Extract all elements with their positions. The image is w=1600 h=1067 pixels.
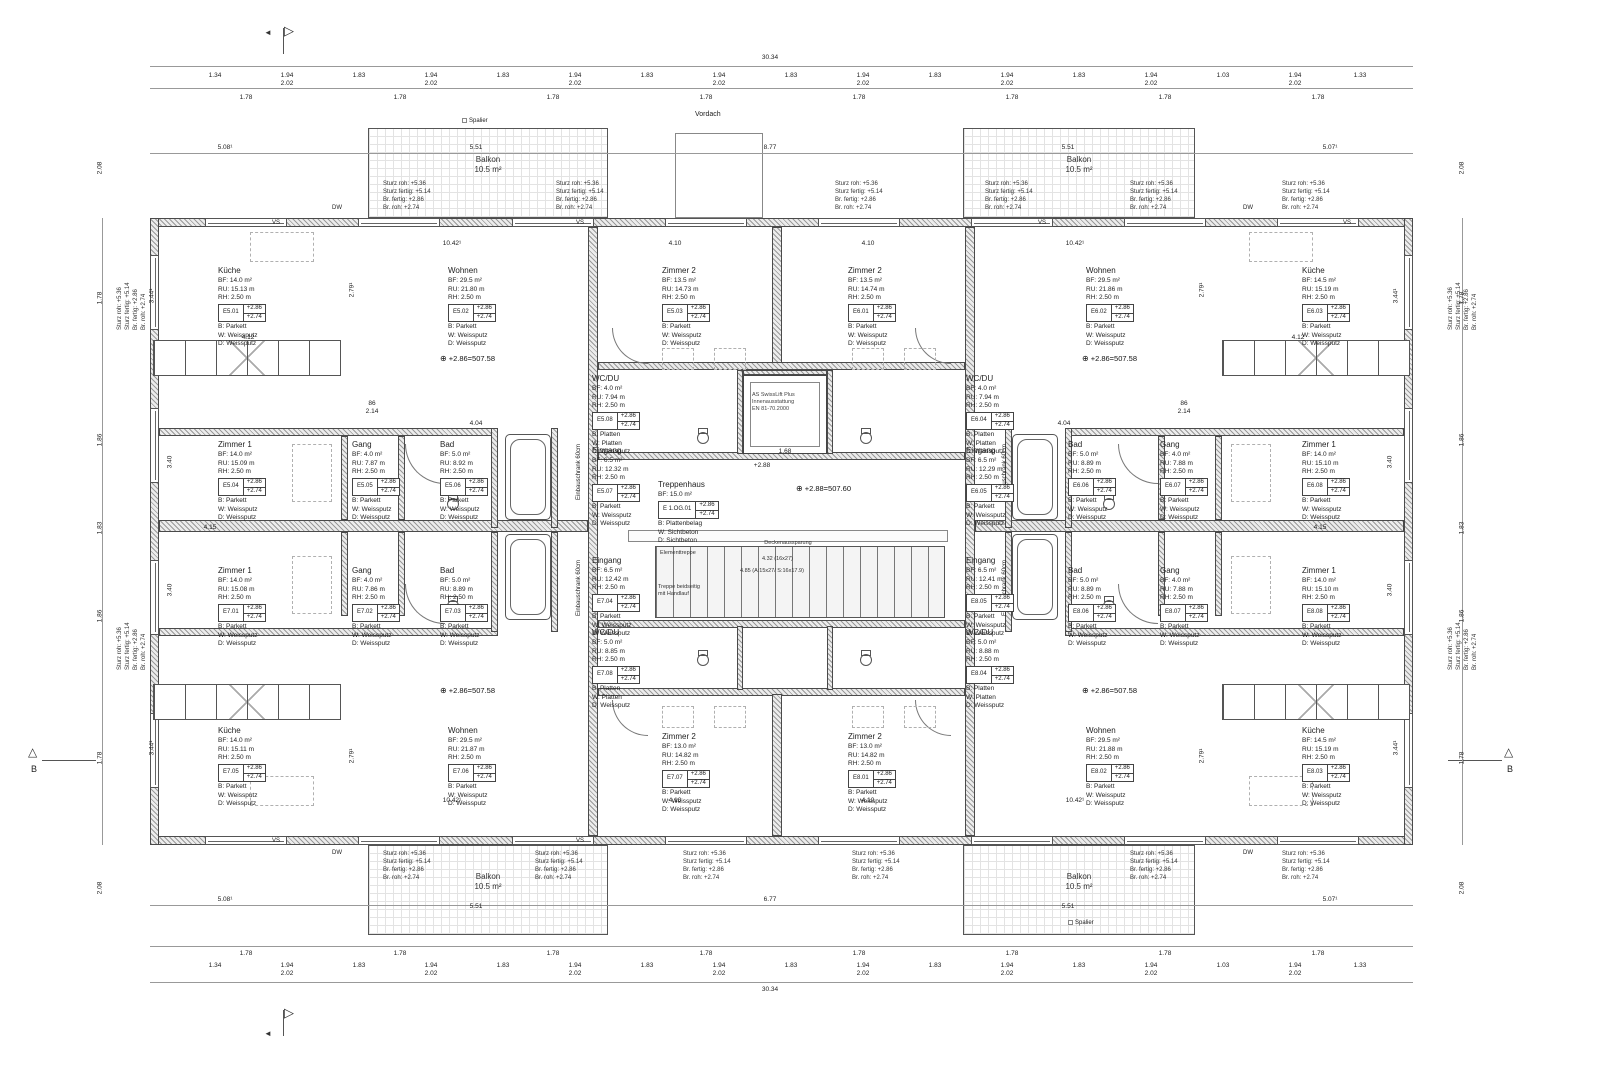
- room-number: E8.07: [1161, 605, 1186, 622]
- room-number: E6.03: [1303, 305, 1328, 322]
- level-raw: +2.74: [874, 780, 895, 788]
- dimension-text: 1.78: [1006, 94, 1019, 101]
- trellis-icon: [462, 118, 467, 123]
- trellis-label-top: Spalier: [462, 118, 488, 124]
- room-perimeter: RU: 21.86 m: [1086, 286, 1181, 294]
- annotation-text: VS: [1038, 220, 1046, 226]
- annotation-text: VS: [272, 838, 280, 844]
- section-line: [42, 760, 96, 761]
- room-title: Wohnen: [448, 726, 543, 736]
- level-raw: +2.74: [244, 614, 265, 622]
- room-number: E7.02: [353, 605, 378, 622]
- room-floor-area: BF: 29.5 m²: [1086, 277, 1181, 285]
- room-height: RH: 2.50 m: [662, 760, 757, 768]
- dimension-line: [150, 946, 1413, 947]
- room-number-box: E8.02 +2.86+2.74: [1086, 764, 1134, 783]
- balcony-area: 10.5 m²: [1065, 882, 1092, 891]
- room-title: Wohnen: [448, 266, 543, 276]
- lintel-note: Sturz roh: +5.36Sturz fertig: +5.14 Br. …: [383, 180, 431, 212]
- room-height: RH: 2.50 m: [966, 656, 1061, 664]
- level-finished: +2.86: [474, 765, 495, 774]
- dimension-text: 1.34: [209, 962, 222, 969]
- room-title: Bad: [1068, 440, 1163, 450]
- room-perimeter: RU: 15.11 m: [218, 746, 313, 754]
- dimension-text: 10.42¹: [1066, 240, 1084, 247]
- material-wall: W: Weissputz: [448, 332, 543, 340]
- material-ceiling: D: Weissputz: [1302, 514, 1397, 522]
- dimension-text: 2.02: [1289, 80, 1302, 87]
- room-floor-area: BF: 6.5 m²: [966, 567, 1061, 575]
- room-floor-area: BF: 15.0 m²: [658, 491, 753, 499]
- dimension-text: 2.02: [1145, 80, 1158, 87]
- dimension-text: 5.51: [470, 903, 483, 910]
- room-floor-area: BF: 4.0 m²: [966, 385, 1061, 393]
- room-label: Zimmer 2 BF: 13.5 m² RU: 14.73 m RH: 2.5…: [662, 266, 757, 349]
- room-number-box: E6.05 +2.86+2.74: [966, 484, 1014, 503]
- room-title: Zimmer 2: [848, 266, 943, 276]
- stair-dim-2: 4.85 (A:15x27/ S:16x17.9): [740, 568, 804, 575]
- material-wall: W: Weissputz: [218, 632, 313, 640]
- material-ceiling: D: Weissputz: [662, 806, 757, 814]
- furniture-outline: [852, 706, 884, 728]
- material-wall: W: Weissputz: [440, 632, 535, 640]
- dimension-text: 1.86: [1459, 434, 1466, 447]
- lintel-note: Sturz roh: +5.36Sturz fertig: +5.14 Br. …: [535, 850, 583, 882]
- annotation-text: Einbauschrank 60cm: [576, 560, 582, 616]
- dimension-text: 1.86: [97, 610, 104, 623]
- room-perimeter: RU: 7.88 m: [1160, 460, 1255, 468]
- dimension-text: 1.83: [1073, 962, 1086, 969]
- level-finished: +2.86: [1112, 305, 1133, 314]
- room-height: RH: 2.50 m: [440, 468, 535, 476]
- level-finished: +2.86: [244, 605, 265, 614]
- level-raw: +2.74: [1112, 314, 1133, 322]
- level-finished: +2.86: [618, 485, 639, 494]
- level-finished: +2.86: [378, 605, 399, 614]
- material-floor: B: Parkett: [592, 613, 687, 621]
- material-floor: B: Platten: [592, 685, 687, 693]
- dimension-text: 1.94: [569, 72, 582, 79]
- dimension-text: 1.78: [97, 292, 104, 305]
- room-label: Gang BF: 4.0 m² RU: 7.86 m RH: 2.50 m E7…: [352, 566, 447, 649]
- room-floor-area: BF: 14.0 m²: [218, 277, 313, 285]
- room-floor-area: BF: 4.0 m²: [1160, 577, 1255, 585]
- dimension-text: 1.78: [1159, 950, 1172, 957]
- level-finished: +2.86: [992, 595, 1013, 604]
- room-number-box: E7.05 +2.86+2.74: [218, 764, 266, 783]
- room-number-box: E7.02 +2.86+2.74: [352, 604, 400, 623]
- room-perimeter: RU: 14.82 m: [662, 752, 757, 760]
- level-marker: ⊕+2.86=507.58: [1082, 686, 1137, 695]
- room-number: E7.03: [441, 605, 466, 622]
- room-floor-area: BF: 14.0 m²: [218, 577, 313, 585]
- room-floor-area: BF: 29.5 m²: [1086, 737, 1181, 745]
- room-number: E 1.OG.01: [659, 502, 696, 519]
- room-label: Treppenhaus BF: 15.0 m² E 1.OG.01 +2.86+…: [658, 480, 753, 546]
- level-finished: +2.86: [378, 479, 399, 488]
- level-finished: +2.86: [1328, 765, 1349, 774]
- window: [1404, 560, 1413, 635]
- level-raw: +2.74: [244, 488, 265, 496]
- dimension-text: 1.94: [1001, 72, 1014, 79]
- dimension-text: 86: [368, 400, 375, 407]
- window: [1404, 713, 1413, 788]
- window: [818, 836, 900, 845]
- room-perimeter: RU: 15.13 m: [218, 286, 313, 294]
- room-number-box: E7.06 +2.86+2.74: [448, 764, 496, 783]
- material-wall: W: Platten: [966, 694, 1061, 702]
- level-finished: +2.86: [1186, 479, 1207, 488]
- room-floor-area: BF: 4.0 m²: [592, 385, 687, 393]
- room-label: Wohnen BF: 29.5 m² RU: 21.88 m RH: 2.50 …: [1086, 726, 1181, 809]
- room-floor-area: BF: 14.5 m²: [1302, 277, 1397, 285]
- room-title: Küche: [218, 266, 313, 276]
- room-title: Zimmer 1: [218, 440, 313, 450]
- room-floor-area: BF: 6.5 m²: [592, 457, 687, 465]
- room-title: WC/DU: [592, 374, 687, 384]
- dimension-line: [150, 153, 1413, 154]
- room-floor-area: BF: 5.0 m²: [1068, 577, 1163, 585]
- dimension-text: 1.78: [1312, 94, 1325, 101]
- room-number: E7.01: [219, 605, 244, 622]
- level-raw: +2.74: [618, 604, 639, 612]
- dimension-text: 1.78: [1159, 94, 1172, 101]
- dimension-text: 1.03: [1217, 962, 1230, 969]
- window: [358, 836, 440, 845]
- wall-segment: [772, 694, 782, 836]
- dimension-text: 2.02: [281, 80, 294, 87]
- dimension-text: 2.02: [569, 80, 582, 87]
- room-label: Bad BF: 5.0 m² RU: 8.89 m RH: 2.50 m E8.…: [1068, 566, 1163, 649]
- material-ceiling: D: Weissputz: [662, 340, 757, 348]
- material-wall: W: Weissputz: [1160, 632, 1255, 640]
- room-number-box: E7.08 +2.86+2.74: [592, 666, 640, 685]
- wall-segment: [965, 227, 975, 836]
- material-floor: B: Parkett: [1068, 623, 1163, 631]
- level-finished: +2.86: [992, 485, 1013, 494]
- level-raw: +2.74: [1094, 614, 1115, 622]
- material-floor: B: Parkett: [1302, 783, 1397, 791]
- material-ceiling: D: Weissputz: [592, 702, 687, 710]
- dimension-text: 1.94: [1289, 962, 1302, 969]
- material-ceiling: D: Weissputz: [352, 640, 447, 648]
- room-number-box: E6.01 +2.86+2.74: [848, 304, 896, 323]
- dimension-text: 2.02: [569, 970, 582, 977]
- level-marker-icon: ⊕: [1082, 354, 1089, 363]
- material-floor: B: Parkett: [966, 503, 1061, 511]
- room-number: E7.08: [593, 667, 618, 684]
- room-height: RH: 2.50 m: [966, 584, 1061, 592]
- dimension-text: 2.02: [281, 970, 294, 977]
- room-perimeter: RU: 7.94 m: [592, 394, 687, 402]
- dimension-text: 1.34: [209, 72, 222, 79]
- dimension-text: 1.83: [497, 72, 510, 79]
- section-arrow-icon: ◄: [264, 1030, 272, 1038]
- window: [1404, 255, 1413, 330]
- level-raw: +2.74: [874, 314, 895, 322]
- room-label: Bad BF: 5.0 m² RU: 8.89 m RH: 2.50 m E6.…: [1068, 440, 1163, 523]
- lintel-note: Sturz roh: +5.36Sturz fertig: +5.14 Br. …: [683, 850, 731, 882]
- level-raw: +2.74: [244, 314, 265, 322]
- stair-dim-1: 4.32 (16x27): [762, 556, 793, 563]
- room-number: E5.05: [353, 479, 378, 496]
- room-title: Eingang: [592, 556, 687, 566]
- material-ceiling: D: Weissputz: [848, 340, 943, 348]
- level-finished: +2.86: [474, 305, 495, 314]
- dimension-text: 2.08: [1459, 162, 1466, 175]
- room-label: Eingang BF: 6.5 m² RU: 12.29 m RH: 2.50 …: [966, 446, 1061, 529]
- room-perimeter: RU: 15.10 m: [1302, 460, 1397, 468]
- room-number-box: E5.04 +2.86+2.74: [218, 478, 266, 497]
- dimension-text: 1.78: [240, 94, 253, 101]
- dimension-text: 2.14: [366, 408, 379, 415]
- room-title: Zimmer 1: [218, 566, 313, 576]
- annotation-text: DW: [332, 850, 342, 856]
- room-height: RH: 2.50 m: [1068, 594, 1163, 602]
- room-label: Küche BF: 14.5 m² RU: 15.19 m RH: 2.50 m…: [1302, 266, 1397, 349]
- dimension-text: 1.94: [281, 72, 294, 79]
- room-label: Wohnen BF: 29.5 m² RU: 21.80 m RH: 2.50 …: [448, 266, 543, 349]
- lintel-note: Sturz roh: +5.36Sturz fertig: +5.14 Br. …: [116, 282, 148, 330]
- dimension-text: 1.78: [700, 94, 713, 101]
- annotation-text: Einbauschrank 60cm: [576, 444, 582, 500]
- room-title: Zimmer 2: [662, 732, 757, 742]
- dimension-text: 1.83: [641, 72, 654, 79]
- room-height: RH: 2.50 m: [848, 294, 943, 302]
- room-height: RH: 2.50 m: [1086, 754, 1181, 762]
- material-floor: B: Parkett: [1086, 323, 1181, 331]
- room-height: RH: 2.50 m: [1160, 594, 1255, 602]
- material-wall: W: Weissputz: [966, 512, 1061, 520]
- annotation-text: DW: [1243, 850, 1253, 856]
- wall-segment: [341, 532, 348, 616]
- room-title: Zimmer 1: [1302, 566, 1397, 576]
- room-perimeter: RU: 12.29 m: [966, 466, 1061, 474]
- material-ceiling: D: Sichtbeton: [658, 537, 753, 545]
- wall-segment: [341, 436, 348, 520]
- room-label: Bad BF: 5.0 m² RU: 8.92 m RH: 2.50 m E5.…: [440, 440, 535, 523]
- room-label: WC/DU BF: 5.0 m² RU: 8.85 m RH: 2.50 m E…: [592, 628, 687, 711]
- dimension-text: 30.34: [762, 986, 778, 993]
- room-title: Bad: [1068, 566, 1163, 576]
- material-floor: B: Parkett: [448, 783, 543, 791]
- material-floor: B: Parkett: [352, 623, 447, 631]
- dimension-text: 1.94: [1145, 72, 1158, 79]
- annotation-text: DW: [1243, 205, 1253, 211]
- room-number-box: E8.05 +2.86+2.74: [966, 594, 1014, 613]
- material-floor: B: Parkett: [448, 323, 543, 331]
- room-perimeter: RU: 14.74 m: [848, 286, 943, 294]
- room-floor-area: BF: 4.0 m²: [352, 451, 447, 459]
- room-label: Wohnen BF: 29.5 m² RU: 21.86 m RH: 2.50 …: [1086, 266, 1181, 349]
- room-perimeter: RU: 8.89 m: [1068, 586, 1163, 594]
- dimension-text: 1.86: [1459, 610, 1466, 623]
- lintel-note: Sturz roh: +5.36Sturz fertig: +5.14 Br. …: [1447, 282, 1479, 330]
- room-perimeter: RU: 7.94 m: [966, 394, 1061, 402]
- room-perimeter: RU: 15.10 m: [1302, 586, 1397, 594]
- room-label: WC/DU BF: 4.0 m² RU: 7.94 m RH: 2.50 m E…: [966, 374, 1061, 457]
- dimension-text: 1.78: [547, 94, 560, 101]
- dimension-text: 3.40: [167, 584, 174, 597]
- room-perimeter: RU: 15.19 m: [1302, 746, 1397, 754]
- room-title: Eingang: [966, 446, 1061, 456]
- room-height: RH: 2.50 m: [352, 468, 447, 476]
- room-label: Zimmer 2 BF: 13.0 m² RU: 14.82 m RH: 2.5…: [662, 732, 757, 815]
- level-finished: +2.86: [1094, 479, 1115, 488]
- dimension-text: 1.78: [97, 752, 104, 765]
- room-number: E6.07: [1161, 479, 1186, 496]
- section-arrow-icon: ◄: [264, 29, 272, 37]
- room-floor-area: BF: 4.0 m²: [1160, 451, 1255, 459]
- dimension-text: 5.08¹: [218, 144, 233, 151]
- wall-segment: [150, 836, 1413, 845]
- lintel-note: Sturz roh: +5.36Sturz fertig: +5.14 Br. …: [985, 180, 1033, 212]
- room-floor-area: BF: 5.0 m²: [592, 639, 687, 647]
- material-wall: W: Weissputz: [1086, 792, 1181, 800]
- room-floor-area: BF: 6.5 m²: [592, 567, 687, 575]
- room-height: RH: 2.50 m: [1302, 594, 1397, 602]
- material-ceiling: D: Weissputz: [848, 806, 943, 814]
- room-label: Gang BF: 4.0 m² RU: 7.87 m RH: 2.50 m E5…: [352, 440, 447, 523]
- room-label: Zimmer 1 BF: 14.0 m² RU: 15.08 m RH: 2.5…: [218, 566, 313, 649]
- level-marker-icon: ⊕: [440, 686, 447, 695]
- material-floor: B: Parkett: [218, 497, 313, 505]
- dimension-text: 2.02: [425, 80, 438, 87]
- room-floor-area: BF: 14.0 m²: [218, 737, 313, 745]
- room-title: Wohnen: [1086, 266, 1181, 276]
- dimension-text: 1.78: [1312, 950, 1325, 957]
- dimension-text: 4.10: [862, 240, 875, 247]
- dimension-text: 2.79¹: [1199, 283, 1206, 298]
- material-wall: W: Weissputz: [848, 332, 943, 340]
- room-number-box: E5.06 +2.86+2.74: [440, 478, 488, 497]
- dimension-text: 1.03: [1217, 72, 1230, 79]
- material-wall: W: Weissputz: [1302, 332, 1397, 340]
- dimension-text: 2.08: [1459, 882, 1466, 895]
- dimension-text: 2.02: [857, 970, 870, 977]
- room-height: RH: 2.50 m: [352, 594, 447, 602]
- window: [150, 408, 159, 483]
- toilet: [697, 428, 709, 444]
- room-label: Bad BF: 5.0 m² RU: 8.89 m RH: 2.50 m E7.…: [440, 566, 535, 649]
- room-number: E6.06: [1069, 479, 1094, 496]
- level-raw: +2.74: [474, 774, 495, 782]
- room-height: RH: 2.50 m: [1086, 294, 1181, 302]
- material-ceiling: D: Weissputz: [1302, 340, 1397, 348]
- room-number: E7.06: [449, 765, 474, 782]
- room-number-box: E5.05 +2.86+2.74: [352, 478, 400, 497]
- room-number: E6.08: [1303, 479, 1328, 496]
- balcony-label: Balkon: [476, 872, 500, 881]
- material-ceiling: D: Weissputz: [1302, 800, 1397, 808]
- material-floor: B: Platten: [592, 431, 687, 439]
- room-floor-area: BF: 29.5 m²: [448, 277, 543, 285]
- level-finished: +2.86: [1186, 605, 1207, 614]
- level-finished: +2.86: [244, 765, 265, 774]
- canopy-label: Vordach: [695, 111, 721, 118]
- dimension-text: 2.14: [1178, 408, 1191, 415]
- section-flag-icon: ▷: [284, 1006, 294, 1019]
- room-label: WC/DU BF: 5.0 m² RU: 8.88 m RH: 2.50 m E…: [966, 628, 1061, 711]
- room-floor-area: BF: 29.5 m²: [448, 737, 543, 745]
- level-finished: +2.86: [1112, 765, 1133, 774]
- room-title: WC/DU: [592, 628, 687, 638]
- annotation-text: VS: [1343, 220, 1351, 226]
- furniture-outline: [1249, 232, 1313, 262]
- dimension-text: 10.42¹: [443, 240, 461, 247]
- floor-plan-sheet: Balkon 10.5 m² Balkon 10.5 m² Balkon 10.…: [0, 0, 1600, 1067]
- room-number-box: E8.06 +2.86+2.74: [1068, 604, 1116, 623]
- room-number-box: E8.04 +2.86+2.74: [966, 666, 1014, 685]
- level-finished: +2.86: [1328, 605, 1349, 614]
- window: [1277, 836, 1359, 845]
- material-ceiling: D: Weissputz: [966, 702, 1061, 710]
- dimension-text: 1.83: [1073, 72, 1086, 79]
- level-raw: +2.74: [992, 494, 1013, 502]
- level-finished: +2.86: [992, 667, 1013, 676]
- material-wall: W: Weissputz: [218, 792, 313, 800]
- room-height: RH: 2.50 m: [966, 474, 1061, 482]
- room-title: Bad: [440, 566, 535, 576]
- room-floor-area: BF: 6.5 m²: [966, 457, 1061, 465]
- room-height: RH: 2.50 m: [1068, 468, 1163, 476]
- dimension-text: 2.02: [1289, 970, 1302, 977]
- toilet: [697, 650, 709, 666]
- section-letter: B: [31, 764, 37, 774]
- room-label: Gang BF: 4.0 m² RU: 7.88 m RH: 2.50 m E6…: [1160, 440, 1255, 523]
- dimension-text: 2.79¹: [1199, 749, 1206, 764]
- room-number-box: E8.01 +2.86+2.74: [848, 770, 896, 789]
- lintel-note: Sturz roh: +5.36Sturz fertig: +5.14 Br. …: [116, 622, 148, 670]
- dimension-text: 5.07¹: [1323, 896, 1338, 903]
- room-perimeter: RU: 21.80 m: [448, 286, 543, 294]
- dimension-text: 3.44¹: [149, 289, 156, 304]
- material-wall: W: Platten: [592, 440, 687, 448]
- room-title: Wohnen: [1086, 726, 1181, 736]
- level-raw: +2.74: [688, 314, 709, 322]
- room-label: Zimmer 1 BF: 14.0 m² RU: 15.09 m RH: 2.5…: [218, 440, 313, 523]
- material-floor: B: Platten: [966, 685, 1061, 693]
- dimension-text: 1.78: [394, 950, 407, 957]
- level-raw: +2.74: [1328, 774, 1349, 782]
- lintel-note: Sturz roh: +5.36Sturz fertig: +5.14 Br. …: [1282, 180, 1330, 212]
- wall-segment: [551, 532, 558, 632]
- level-raw: +2.74: [688, 780, 709, 788]
- room-number: E7.04: [593, 595, 618, 612]
- dimension-text: 1.83: [785, 72, 798, 79]
- dimension-text: 4.15: [1314, 524, 1327, 531]
- material-floor: B: Parkett: [1160, 497, 1255, 505]
- dimension-text: 1.78: [1459, 292, 1466, 305]
- level-finished: +2.86: [1094, 605, 1115, 614]
- room-label: Zimmer 1 BF: 14.0 m² RU: 15.10 m RH: 2.5…: [1302, 440, 1397, 523]
- wall-segment: [551, 428, 558, 528]
- room-title: Gang: [352, 566, 447, 576]
- room-number: E5.08: [593, 413, 618, 430]
- material-ceiling: D: Weissputz: [218, 800, 313, 808]
- level-raw: +2.74: [244, 774, 265, 782]
- dimension-text: 1.94: [425, 962, 438, 969]
- room-height: RH: 2.50 m: [218, 754, 313, 762]
- room-number-box: E7.07 +2.86+2.74: [662, 770, 710, 789]
- material-floor: B: Parkett: [218, 323, 313, 331]
- material-wall: W: Weissputz: [440, 506, 535, 514]
- section-flag-icon: ▷: [284, 24, 294, 37]
- room-perimeter: RU: 12.42 m: [592, 576, 687, 584]
- room-number-box: E7.03 +2.86+2.74: [440, 604, 488, 623]
- room-number: E8.08: [1303, 605, 1328, 622]
- room-perimeter: RU: 8.92 m: [440, 460, 535, 468]
